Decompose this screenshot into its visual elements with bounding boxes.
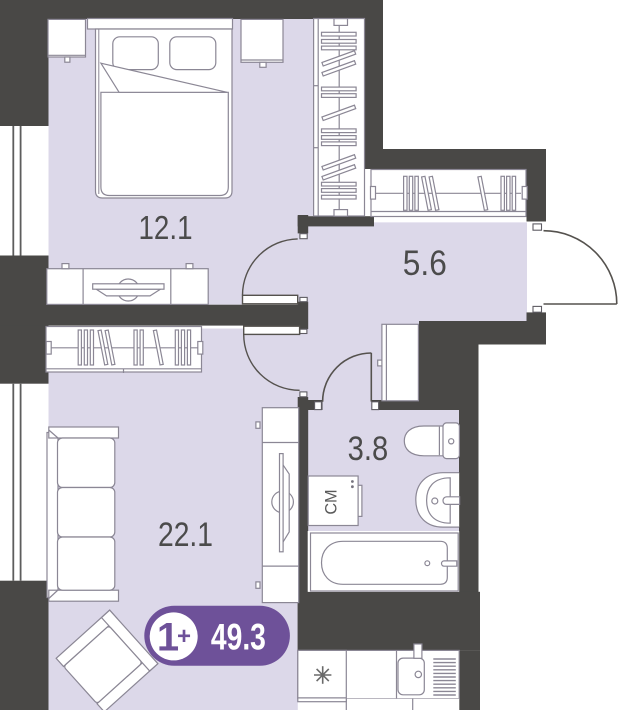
svg-text:1: 1 bbox=[157, 616, 179, 660]
svg-text:49.3: 49.3 bbox=[211, 617, 266, 658]
svg-text:5.6: 5.6 bbox=[403, 244, 447, 283]
svg-text:3.8: 3.8 bbox=[348, 430, 389, 468]
svg-text:12.1: 12.1 bbox=[139, 209, 193, 246]
svg-text:22.1: 22.1 bbox=[158, 516, 213, 554]
svg-text:+: + bbox=[177, 623, 191, 650]
svg-text:СМ: СМ bbox=[323, 489, 341, 514]
